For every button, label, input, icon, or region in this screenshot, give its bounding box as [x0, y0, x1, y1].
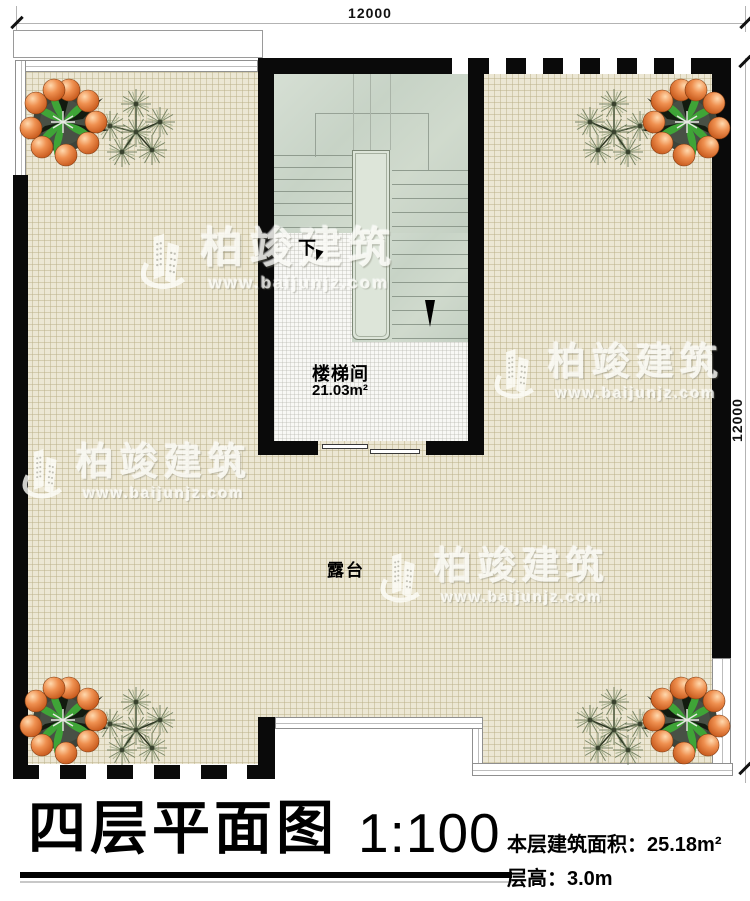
corner-plants-bottom-left: [18, 670, 178, 770]
corner-plants-bottom-right: [572, 670, 732, 770]
wall-stairwell-top: [258, 58, 432, 74]
stair-rail-line: [390, 74, 391, 150]
stair-central-flight: [352, 150, 390, 340]
corner-plants-top-left: [18, 72, 178, 172]
stair-landing-line: [315, 113, 428, 114]
wall-stairwell-left: [258, 58, 274, 455]
wall-stairwell-right: [468, 58, 484, 455]
parapet-notch-top: [275, 717, 483, 729]
wall-stairwell-bottom-left: [258, 441, 318, 455]
stair-rail-line: [353, 74, 354, 150]
stair-central-flight-inner: [355, 153, 387, 337]
terrace-label: 露台: [327, 556, 365, 581]
wall-stairwell-bottom-right: [426, 441, 484, 455]
drawing-scale: 1:100: [358, 806, 501, 861]
title-underline-shadow: [20, 881, 512, 883]
title-underline: [20, 872, 512, 878]
eave-overhang-band: [13, 30, 263, 58]
top-dimension-value: 12000: [340, 5, 400, 21]
stair-rail-line: [370, 74, 371, 150]
stairwell-door-panel: [370, 449, 420, 454]
stair-treads-left: [274, 155, 352, 233]
floor-plan-canvas: 12000 12000 柏竣: [0, 0, 750, 901]
floor-height-text: 层高：3.0m: [507, 862, 613, 891]
stair-landing-line: [315, 113, 316, 157]
stair-landing-line: [428, 113, 429, 170]
wall-bottom-jog: [258, 717, 275, 779]
right-dimension-line: [745, 58, 746, 783]
floor-area-text: 本层建筑面积：25.18m²: [507, 828, 722, 857]
stairwell-area: 21.03m²: [312, 382, 368, 399]
parapet-top-left: [16, 60, 258, 72]
corner-plants-top-right: [572, 72, 732, 172]
parapet-notch-right: [472, 728, 483, 764]
right-dimension-value: 12000: [729, 390, 745, 450]
drawing-title: 四层平面图: [28, 800, 338, 858]
stair-down-arrow-icon: [425, 300, 435, 327]
stairwell-door-panel: [322, 444, 368, 449]
top-dimension-line: [16, 23, 746, 24]
